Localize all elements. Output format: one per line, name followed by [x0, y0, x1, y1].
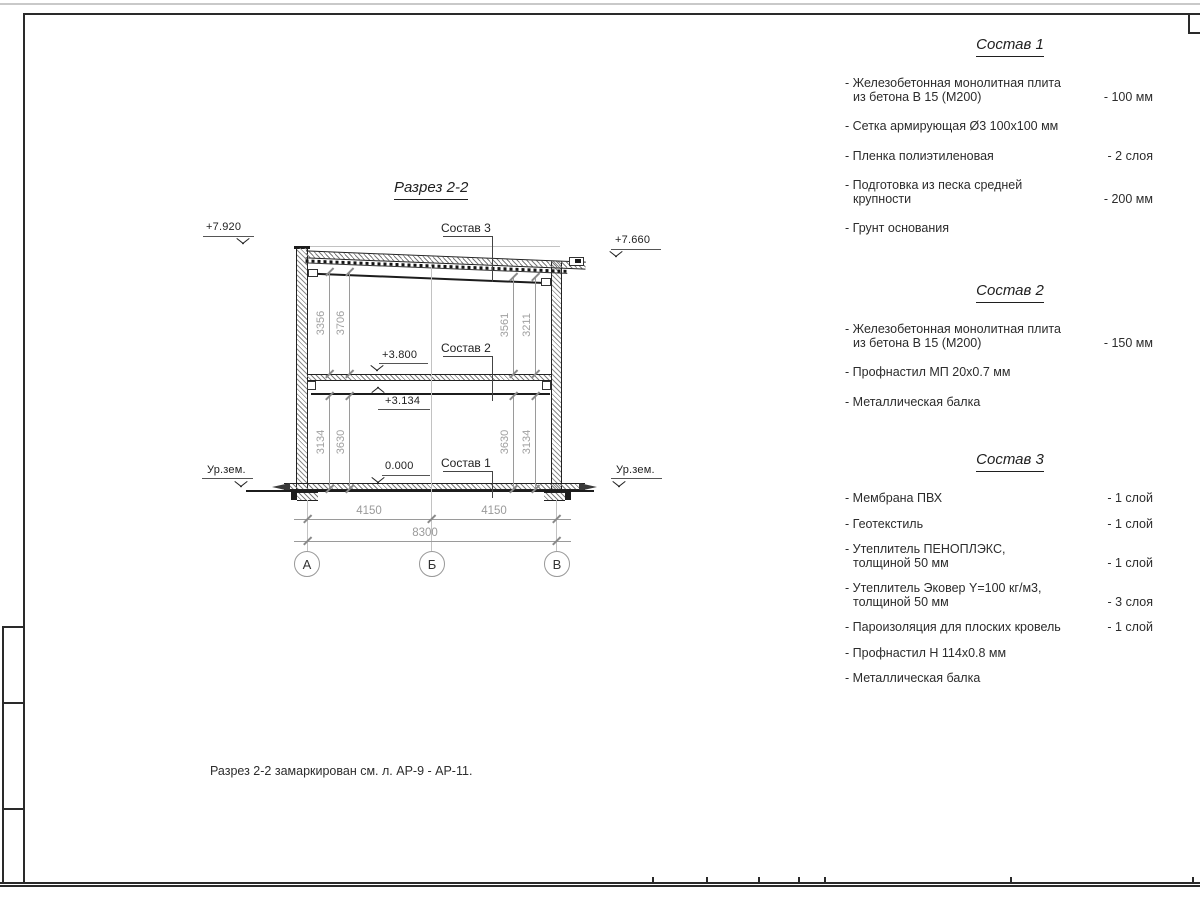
dim-text-span-right: 4150 — [464, 505, 524, 517]
elevation-underline — [382, 475, 430, 476]
roof-beam-seat-right — [541, 278, 551, 286]
composition-item: - Металлическая балка — [845, 396, 1153, 410]
vdim-text: 3630 — [499, 397, 513, 487]
item-quantity: - 1 слой — [1101, 518, 1153, 532]
elevation-underline — [611, 478, 662, 479]
vdim-line — [535, 396, 536, 489]
ground-level-label-left: Ур.зем. — [207, 464, 246, 476]
right-wall-section — [551, 261, 562, 492]
roof-eave-cap — [569, 257, 584, 266]
filing-box-divider — [2, 626, 24, 628]
elevation-beam: +3.134 — [385, 395, 420, 407]
composition-1-title: Состав 1 — [856, 36, 1164, 53]
item-quantity: - 1 слой — [1101, 492, 1153, 506]
vdim-text: 3356 — [315, 278, 329, 368]
titleblock-tick — [706, 877, 708, 883]
composition-list-2: Состав 2 - Железобетонная монолитная пли… — [845, 282, 1153, 425]
titleblock-tick — [758, 877, 760, 883]
composition-list-3: Состав 3 - Мембрана ПВХ - 1 слой - Геоте… — [845, 451, 1153, 698]
roof-beam-seat-left — [308, 269, 318, 277]
dim-line-spans — [294, 519, 571, 520]
filing-box-divider — [2, 702, 24, 704]
grid-bubble-b: Б — [419, 551, 445, 577]
callout-sostav1: Состав 1 — [441, 456, 491, 470]
construction-line — [308, 246, 560, 247]
elevation-underline — [203, 236, 254, 237]
vdim-line — [513, 396, 514, 489]
item-quantity: - 200 мм — [1098, 193, 1153, 207]
footing-right-pad — [565, 492, 571, 500]
corner-box-left — [1188, 13, 1190, 33]
item-label: - Подготовка из песка средней крупности — [845, 179, 1022, 206]
elevation-mark-icon — [612, 481, 626, 490]
composition-item: - Грунт основания — [845, 222, 1153, 236]
filing-box-divider — [2, 808, 24, 810]
vdim-text: 3561 — [499, 280, 513, 370]
callout-leader — [492, 236, 493, 282]
floor2-slab-hatch — [307, 374, 551, 381]
floor2-beam-seat-right — [542, 381, 551, 390]
item-label: - Пленка полиэтиленовая — [845, 150, 994, 164]
frame-bottom-outer — [0, 882, 1200, 884]
ground-level-label-right: Ур.зем. — [616, 464, 655, 476]
item-quantity: - 2 слоя — [1102, 150, 1153, 164]
elevation-underline — [378, 409, 430, 410]
vdim-line — [329, 272, 330, 374]
composition-item: - Геотекстиль - 1 слой — [845, 518, 1153, 532]
elevation-underline — [202, 478, 253, 479]
callout-leader — [492, 471, 493, 498]
item-label: - Профнастил Н 114х0.8 мм — [845, 647, 1006, 661]
callout-leader — [492, 356, 493, 401]
item-quantity: - 100 мм — [1098, 91, 1153, 105]
composition-item: - Утеплитель ПЕНОПЛЭКС, толщиной 50 мм -… — [845, 543, 1153, 570]
left-wall-section — [296, 248, 308, 492]
vdim-line — [535, 277, 536, 374]
composition-item: - Пленка полиэтиленовая - 2 слоя — [845, 150, 1153, 164]
roof-eave-cap-fill — [575, 259, 581, 263]
filing-box-edge — [2, 626, 4, 884]
composition-item: - Утеплитель Эковер Y=100 кг/м3, толщино… — [845, 582, 1153, 609]
grid-extension-a — [307, 500, 308, 551]
elevation-mark-icon — [371, 384, 385, 393]
composition-item: - Профнастил Н 114х0.8 мм — [845, 647, 1153, 661]
frame-left — [23, 13, 25, 884]
titleblock-tick — [798, 877, 800, 883]
item-label: - Сетка армирующая Ø3 100х100 мм — [845, 120, 1058, 134]
section-view-title: Разрез 2-2 — [394, 179, 468, 200]
item-quantity: - 3 слоя — [1102, 596, 1153, 610]
titleblock-tick — [824, 877, 826, 883]
sheet-outer-edge — [0, 3, 1200, 5]
item-quantity: - 1 слой — [1101, 557, 1153, 571]
vdim-text: 3706 — [335, 278, 349, 368]
elevation-mark-icon — [234, 481, 248, 490]
callout-sostav2: Состав 2 — [441, 341, 491, 355]
grid-extension-v — [556, 500, 557, 551]
grid-bubble-a: А — [294, 551, 320, 577]
dim-text-span-total: 8300 — [395, 527, 455, 539]
composition-item: - Подготовка из песка средней крупности … — [845, 179, 1153, 206]
callout-underline — [443, 356, 493, 357]
elevation-roof-left: +7.920 — [206, 221, 241, 233]
vdim-line — [513, 277, 514, 374]
grid-bubble-v: В — [544, 551, 570, 577]
composition-2-title: Состав 2 — [856, 282, 1164, 299]
item-label: - Утеплитель Эковер Y=100 кг/м3, толщино… — [845, 582, 1041, 609]
callout-underline — [443, 236, 493, 237]
item-label: - Железобетонная монолитная плита из бет… — [845, 77, 1061, 104]
elevation-underline — [611, 249, 661, 250]
frame-bottom-inner — [0, 885, 1200, 887]
floor2-beam-seat-left — [307, 381, 316, 390]
item-label: - Металлическая балка — [845, 396, 980, 410]
frame-top — [23, 13, 1200, 15]
elevation-mark-icon — [370, 365, 384, 374]
composition-3-title: Состав 3 — [856, 451, 1164, 468]
item-label: - Металлическая балка — [845, 672, 980, 686]
item-label: - Железобетонная монолитная плита из бет… — [845, 323, 1061, 350]
titleblock-tick — [1010, 877, 1012, 883]
item-quantity: - 1 слой — [1101, 621, 1153, 635]
vdim-text: 3630 — [335, 397, 349, 487]
elevation-underline — [379, 363, 428, 364]
item-label: - Пароизоляция для плоских кровель — [845, 621, 1061, 635]
vdim-text: 3134 — [521, 397, 535, 487]
vdim-line — [349, 272, 350, 374]
item-label: - Утеплитель ПЕНОПЛЭКС, толщиной 50 мм — [845, 543, 1005, 570]
composition-list-1: Состав 1 - Железобетонная монолитная пли… — [845, 36, 1153, 252]
item-label: - Профнастил МП 20х0.7 мм — [845, 366, 1010, 380]
composition-item: - Пароизоляция для плоских кровель - 1 с… — [845, 621, 1153, 635]
vdim-text: 3211 — [521, 280, 535, 370]
dim-line-total — [294, 541, 571, 542]
footing-left-pad — [291, 492, 297, 500]
elevation-floor1: 0.000 — [385, 460, 414, 472]
composition-item: - Мембрана ПВХ - 1 слой — [845, 492, 1153, 506]
titleblock-tick — [652, 877, 654, 883]
titleblock-tick — [1192, 877, 1194, 883]
callout-underline — [443, 471, 493, 472]
elevation-floor2: +3.800 — [382, 349, 417, 361]
vdim-line — [329, 396, 330, 489]
vdim-line — [349, 396, 350, 489]
elevation-mark-icon — [371, 477, 385, 486]
composition-item: - Железобетонная монолитная плита из бет… — [845, 77, 1153, 104]
vdim-text: 3134 — [315, 397, 329, 487]
grid-line-b — [431, 266, 432, 551]
item-label: - Геотекстиль — [845, 518, 923, 532]
dim-text-span-left: 4150 — [339, 505, 399, 517]
composition-item: - Профнастил МП 20х0.7 мм — [845, 366, 1153, 380]
composition-item: - Металлическая балка — [845, 672, 1153, 686]
callout-sostav3: Состав 3 — [441, 221, 491, 235]
sheet-note: Разрез 2-2 замаркирован см. л. АР-9 - АР… — [210, 764, 472, 778]
corner-box-bottom — [1188, 32, 1200, 34]
elevation-mark-icon — [236, 238, 250, 247]
elevation-roof-right: +7.660 — [615, 234, 650, 246]
item-label: - Мембрана ПВХ — [845, 492, 942, 506]
composition-item: - Железобетонная монолитная плита из бет… — [845, 323, 1153, 350]
footing-right — [544, 492, 565, 501]
elevation-mark-icon — [609, 251, 623, 260]
composition-item: - Сетка армирующая Ø3 100х100 мм — [845, 120, 1153, 134]
item-label: - Грунт основания — [845, 222, 949, 236]
item-quantity: - 150 мм — [1098, 337, 1153, 351]
drawing-sheet: Разрез 2-2 +7.920 +7.660 +3.800 +3.134 0… — [0, 0, 1200, 900]
